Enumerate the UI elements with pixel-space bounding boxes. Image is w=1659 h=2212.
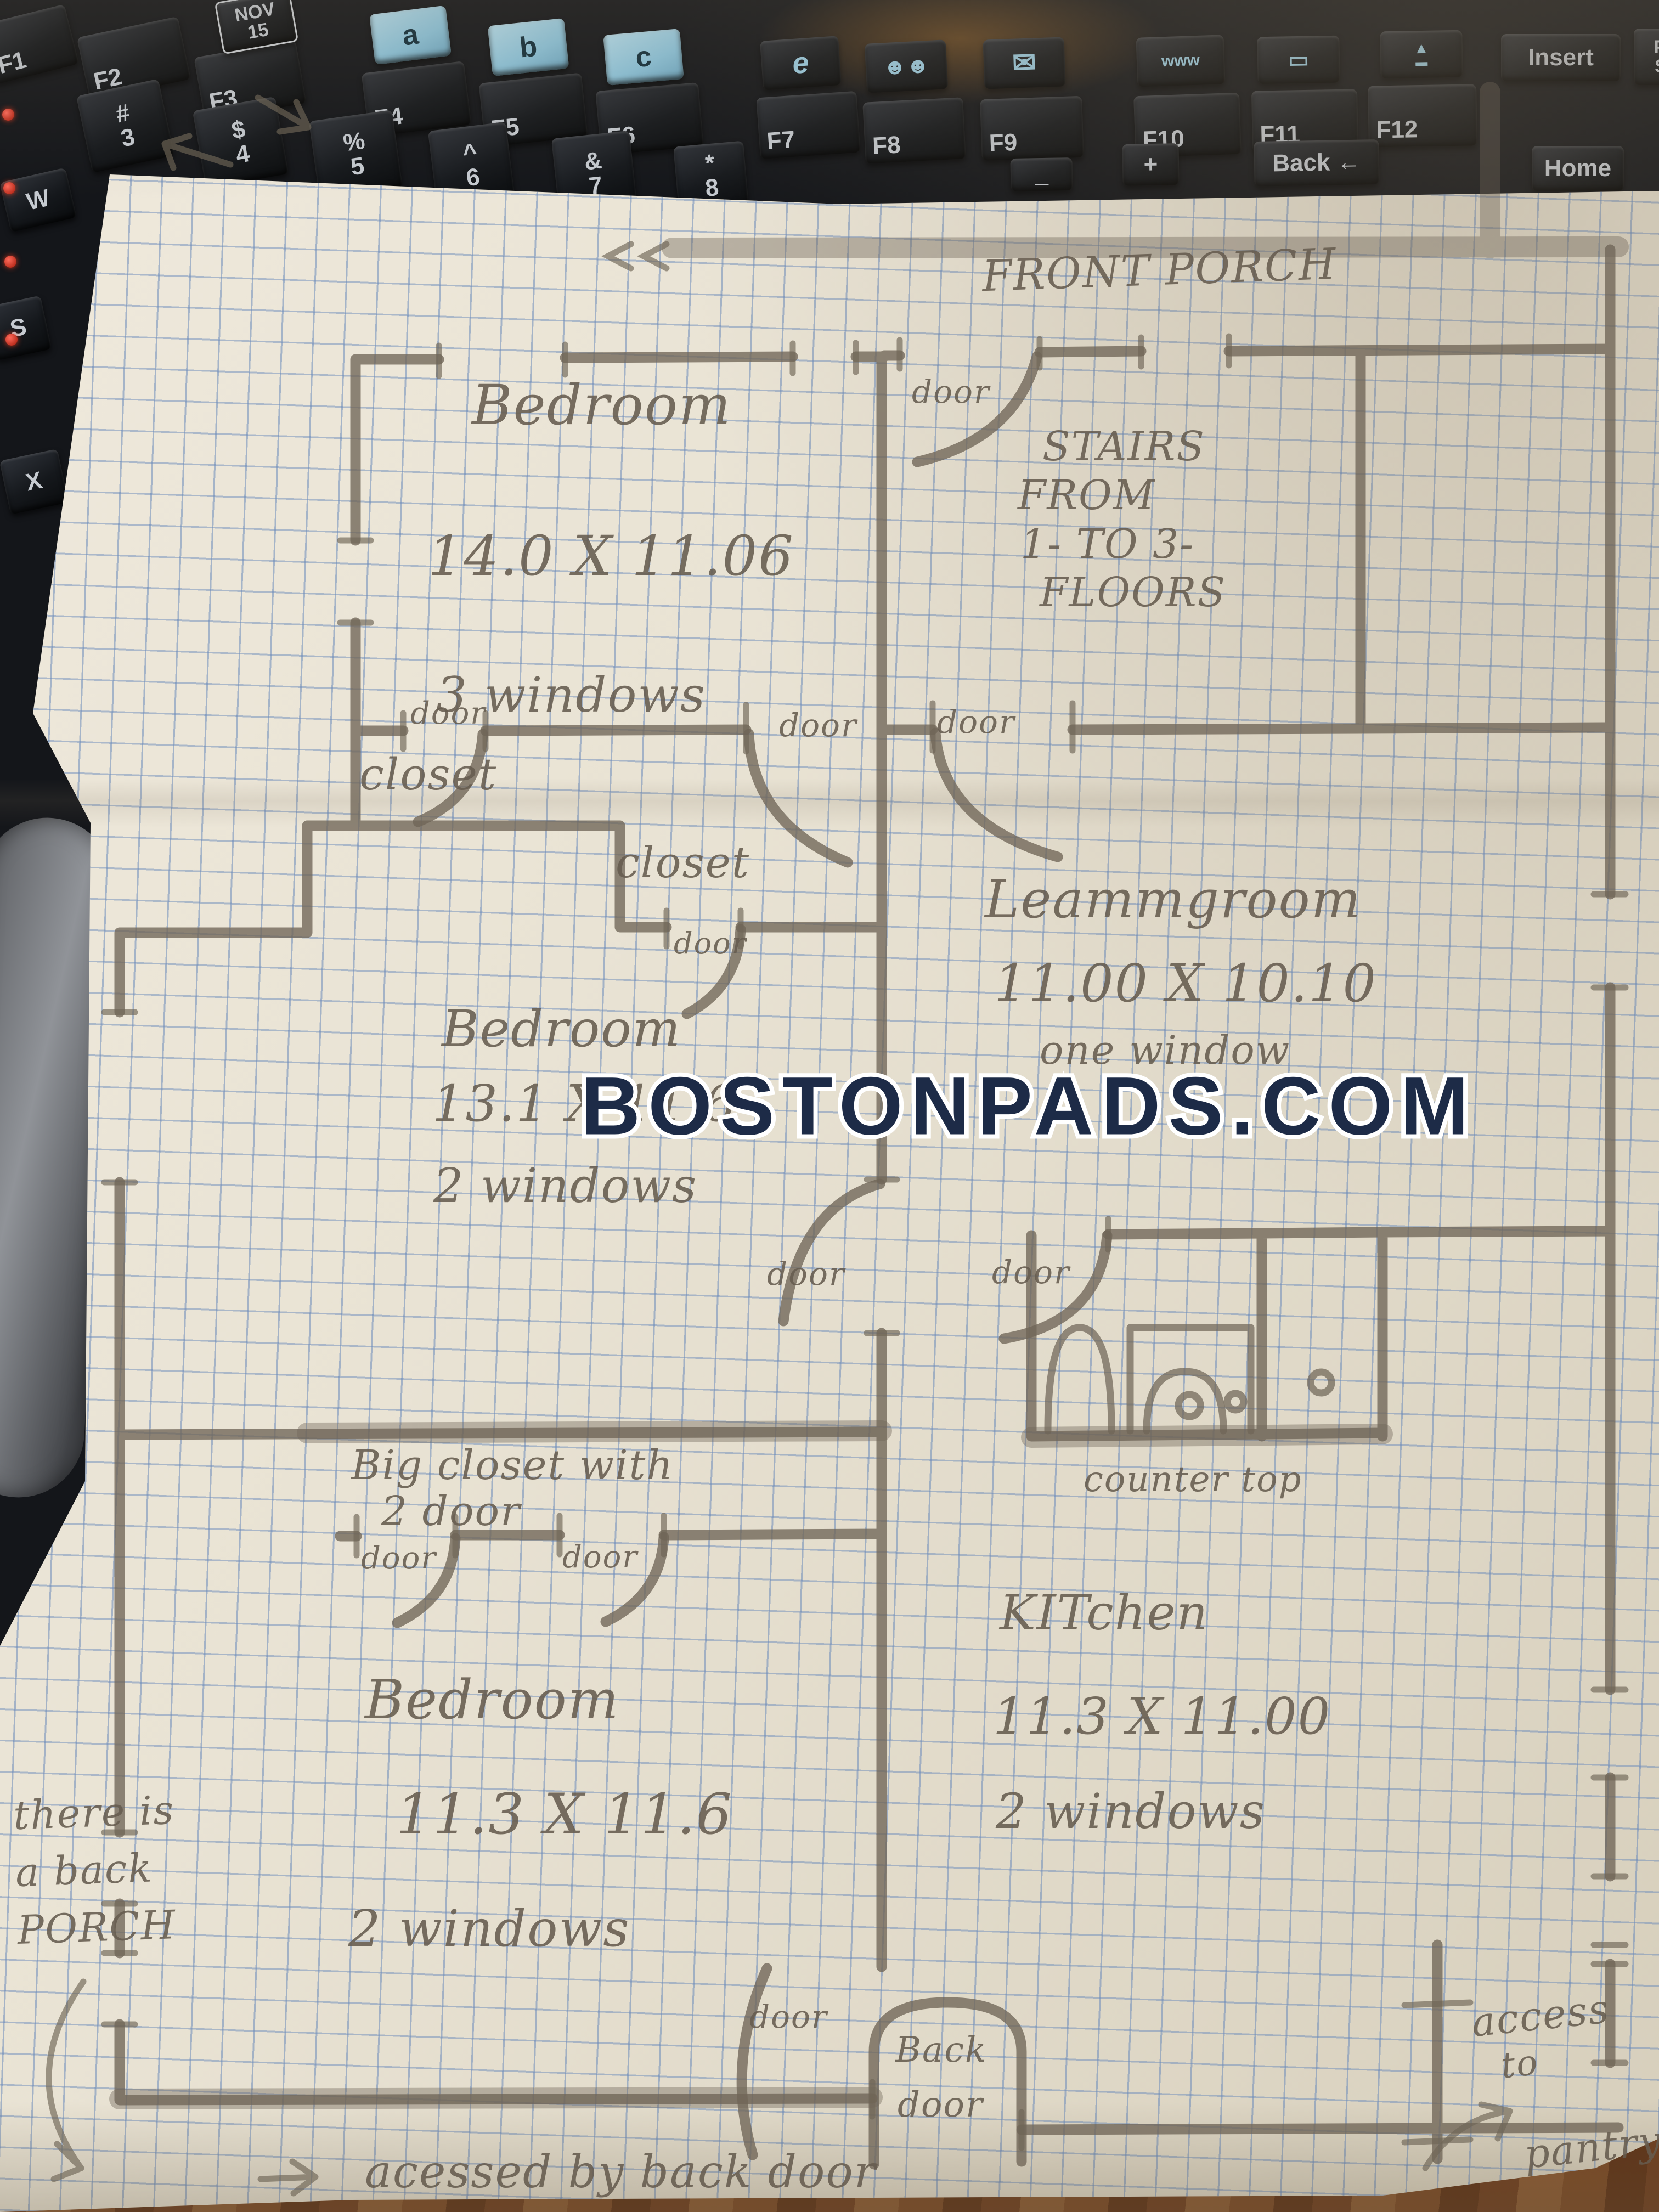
bedroom-bottom-name: Bedroom [365, 1669, 620, 1731]
porch-band [608, 92, 1618, 268]
photo-of-floorplan: F1 F2 F3 F4 F5 F6 F7 F8 F9 F10 F11 F12 N… [0, 0, 1659, 2212]
bedroom-top-name: Bedroom [472, 373, 732, 437]
accessed-note: acessed by back door [365, 2146, 877, 2198]
back-door-line2: door [898, 2085, 984, 2125]
back-door-line1: Back [895, 2030, 988, 2070]
door-label-closet-top: door [410, 696, 486, 731]
closet-mid-label: closet [616, 838, 750, 888]
bostonpads-watermark: BOSTONPADS.COM BOSTONPADS.COM [581, 1059, 1476, 1154]
bedroom-mid-name: Bedroom [442, 1000, 681, 1058]
counter-top-label: counter top [1084, 1459, 1302, 1500]
bedroom-bottom-windows: 2 windows [348, 1899, 630, 1958]
kitchen-windows: 2 windows [996, 1783, 1266, 1839]
walls [120, 250, 1618, 2164]
bedroom-bottom-dims: 11.3 X 11.6 [396, 1782, 733, 1847]
livingroom-name: Leammgroom [985, 870, 1362, 930]
kitchen-name: KITchen [1000, 1584, 1209, 1641]
bathroom-fixtures [1048, 1328, 1331, 1431]
door-label-big-closet-2: door [562, 1539, 638, 1575]
door-label-bottom: door [749, 1998, 828, 2035]
door-label-entry: door [912, 373, 990, 410]
door-label-bathroom: door [992, 1254, 1070, 1291]
door-label-hall-mid: door [767, 1255, 845, 1293]
door-label-hall-1: door [779, 707, 857, 744]
kitchen-dims: 11.3 X 11.00 [993, 1687, 1331, 1746]
back-porch-note: there is a back PORCH [13, 1781, 180, 1959]
window-and-jamb-ticks [104, 336, 1626, 2148]
door-label-hall-2: door [937, 703, 1015, 741]
big-closet-line2: 2 door [381, 1488, 521, 1535]
stairs-note: STAIRS FROM 1- TO 3- FLOORS [1042, 422, 1226, 617]
bedroom-top-dims: 14.0 X 11.06 [428, 524, 794, 588]
big-closet-line1: Big closet with [351, 1442, 674, 1489]
door-label-big-closet-1: door [361, 1541, 437, 1576]
pantry-note-line2: to [1499, 2042, 1541, 2087]
livingroom-dims: 11.00 X 10.10 [994, 953, 1377, 1014]
bedroom-mid-windows: 2 windows [433, 1159, 697, 1214]
closet-top-label: closet [359, 749, 497, 800]
door-label-closet-mid: door [674, 926, 747, 961]
